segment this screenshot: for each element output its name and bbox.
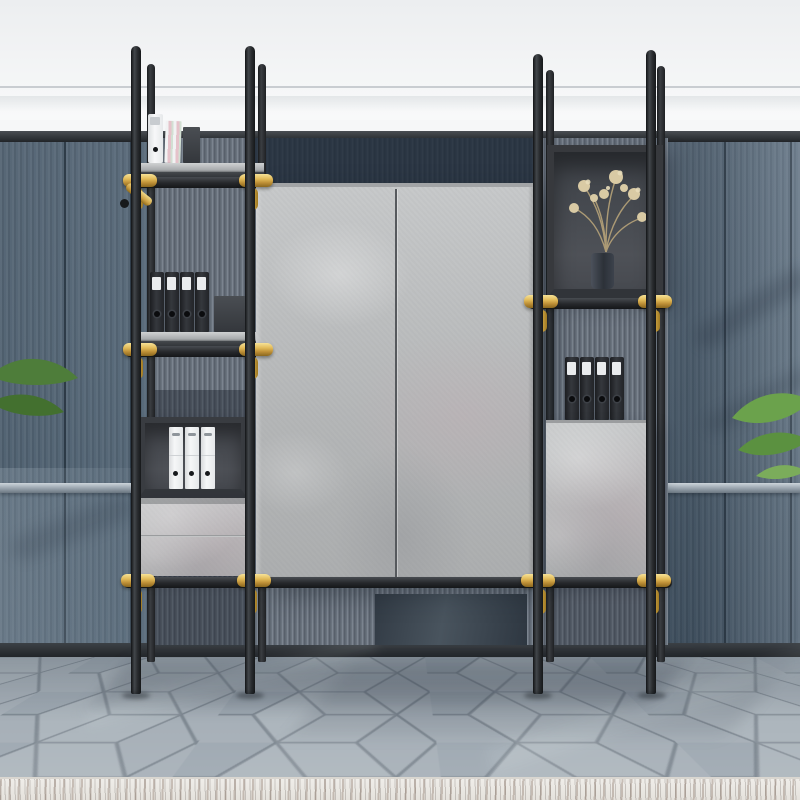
drawer-seam — [139, 535, 247, 537]
black-binder — [595, 357, 609, 420]
connector-end-cap — [120, 199, 129, 208]
black-binder — [150, 272, 164, 332]
rail-bottom — [123, 577, 672, 588]
pole-front — [533, 54, 543, 694]
white-file-box — [185, 427, 199, 489]
area-rug — [0, 777, 800, 800]
plant-right — [730, 384, 800, 480]
leg-shadow — [122, 692, 150, 699]
right-cabinet — [546, 420, 654, 580]
mid-shelf-binders — [150, 272, 212, 332]
white-binder — [148, 114, 163, 163]
plant-left — [0, 342, 84, 434]
pole-front — [245, 46, 255, 694]
black-binder — [180, 272, 194, 332]
door-gap — [395, 189, 397, 579]
sliding-door-cabinet — [256, 183, 536, 584]
crown-molding-line — [0, 86, 800, 88]
leg-shadow — [524, 692, 552, 699]
scene-room — [0, 0, 800, 800]
black-binder — [565, 357, 579, 420]
crown-molding-band — [0, 96, 800, 112]
leg-shadow — [236, 692, 264, 699]
dried-flowers — [558, 164, 654, 254]
bookend — [183, 127, 200, 163]
striped-book — [164, 121, 181, 164]
top-shelf-items — [148, 114, 208, 163]
drawer-top-shadow — [139, 498, 247, 504]
open-cubby — [139, 417, 247, 498]
cabinet-edge-light — [256, 187, 262, 584]
vase — [591, 253, 614, 289]
white-file-box — [169, 427, 183, 489]
black-binder — [610, 357, 624, 420]
black-binder — [580, 357, 594, 420]
bookend — [214, 296, 246, 332]
black-binder — [165, 272, 179, 332]
right-shelf-binders — [565, 357, 627, 420]
under-cabinet-glass — [375, 594, 527, 645]
drawer-chest — [139, 498, 247, 576]
ceiling — [0, 0, 800, 140]
black-binder — [195, 272, 209, 332]
file-box-row — [169, 427, 215, 489]
pole-front — [131, 46, 141, 694]
leg-shadow — [638, 692, 666, 699]
white-file-box — [201, 427, 215, 489]
flute-shadow-patch — [255, 138, 537, 188]
pole-front — [646, 50, 656, 694]
